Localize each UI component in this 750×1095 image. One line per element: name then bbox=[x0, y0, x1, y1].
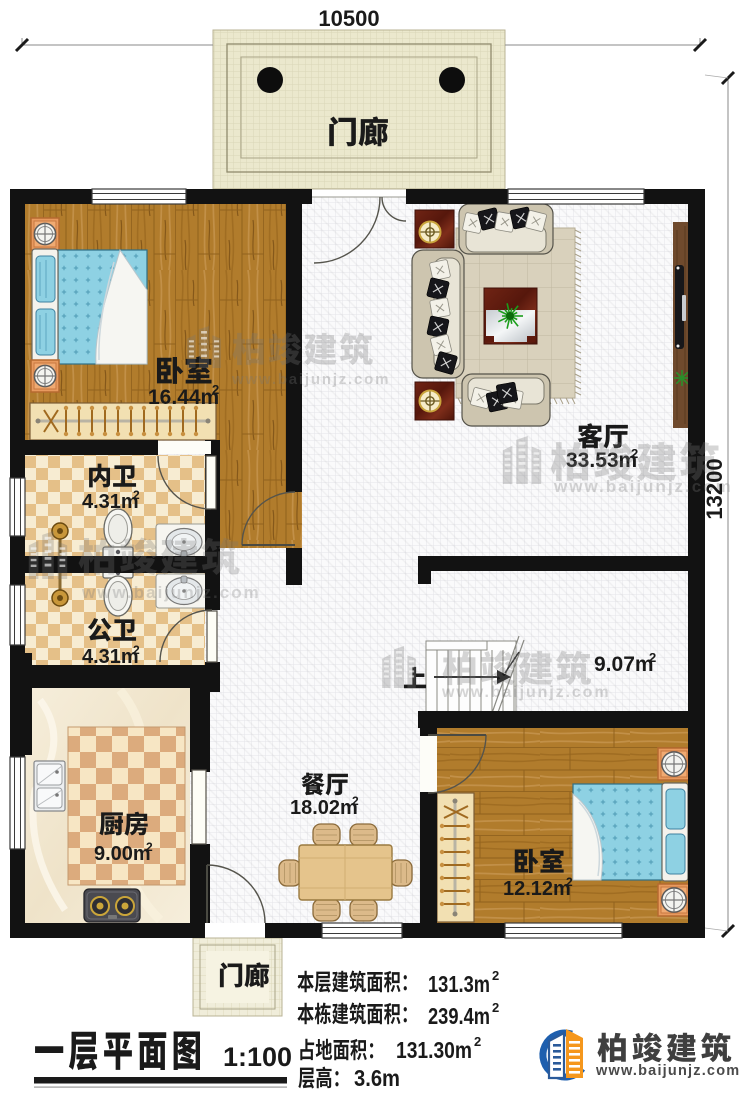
svg-text:2: 2 bbox=[492, 968, 499, 983]
svg-text:2: 2 bbox=[146, 840, 153, 854]
svg-text:2: 2 bbox=[474, 1034, 481, 1049]
svg-text:2: 2 bbox=[649, 650, 656, 665]
svg-text:2: 2 bbox=[212, 382, 219, 397]
svg-text:3.6m: 3.6m bbox=[354, 1065, 400, 1091]
svg-text:www.baijunjz.com: www.baijunjz.com bbox=[595, 1063, 740, 1079]
svg-text:9.00m: 9.00m bbox=[94, 843, 151, 865]
svg-text:4.31m: 4.31m bbox=[82, 491, 139, 513]
svg-text:9.07m: 9.07m bbox=[594, 653, 654, 676]
svg-text:www.baijunjz.com: www.baijunjz.com bbox=[231, 371, 390, 388]
svg-text:12.12m: 12.12m bbox=[503, 878, 571, 900]
svg-text:2: 2 bbox=[566, 875, 573, 889]
svg-text:2: 2 bbox=[133, 643, 140, 657]
svg-text:131.30m: 131.30m bbox=[396, 1037, 472, 1063]
svg-text:1:100: 1:100 bbox=[223, 1042, 292, 1072]
svg-text:239.4m: 239.4m bbox=[428, 1003, 490, 1029]
svg-text:2: 2 bbox=[492, 1000, 499, 1015]
svg-text:4.31m: 4.31m bbox=[82, 646, 139, 668]
svg-text:2: 2 bbox=[133, 488, 140, 502]
svg-text:10500: 10500 bbox=[318, 6, 379, 31]
svg-text:www.baijunjz.com: www.baijunjz.com bbox=[441, 684, 611, 701]
svg-text:131.3m: 131.3m bbox=[428, 971, 490, 997]
svg-text:16.44m: 16.44m bbox=[148, 386, 219, 409]
svg-text:2: 2 bbox=[352, 794, 359, 808]
svg-text:13200: 13200 bbox=[702, 458, 727, 519]
svg-text:18.02m: 18.02m bbox=[290, 797, 358, 819]
svg-text:www.baijunjz.com: www.baijunjz.com bbox=[81, 583, 261, 602]
